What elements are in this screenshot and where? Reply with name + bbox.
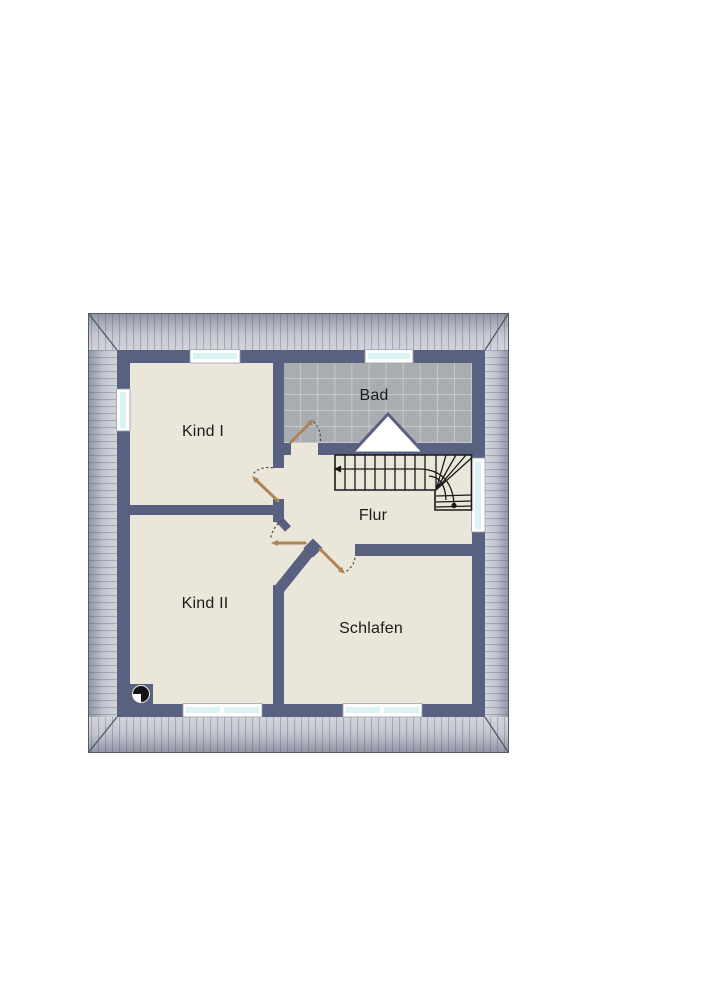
floors bbox=[130, 363, 472, 704]
floorplan-page: Kind I Bad Flur Kind II Schlafen bbox=[0, 0, 707, 1000]
window-top-kind1 bbox=[190, 350, 240, 364]
exterior-wall-top bbox=[117, 350, 485, 363]
exterior-wall-right bbox=[472, 350, 485, 717]
room-label-flur: Flur bbox=[359, 507, 387, 525]
wall-schlafen-flur bbox=[355, 544, 472, 556]
floorplan-drawing bbox=[0, 0, 707, 1000]
window-bottom-kind2 bbox=[183, 704, 262, 718]
window-left-kind1 bbox=[117, 389, 131, 431]
room-label-kind-1: Kind I bbox=[182, 423, 224, 441]
wall-bad-door-jamb bbox=[273, 443, 291, 455]
chimney-icon bbox=[133, 686, 150, 703]
room-label-bad: Bad bbox=[359, 387, 388, 405]
wall-kind1-kind2 bbox=[130, 505, 273, 515]
wall-kind2-schlafen bbox=[273, 585, 284, 704]
stair-start-dot bbox=[451, 503, 456, 508]
window-top-bad bbox=[365, 350, 413, 364]
window-right-flur bbox=[472, 458, 486, 532]
room-label-schlafen: Schlafen bbox=[339, 620, 403, 638]
exterior-wall-bottom bbox=[117, 704, 485, 717]
room-label-kind-2: Kind II bbox=[182, 595, 229, 613]
window-bottom-schlafen bbox=[343, 704, 422, 718]
